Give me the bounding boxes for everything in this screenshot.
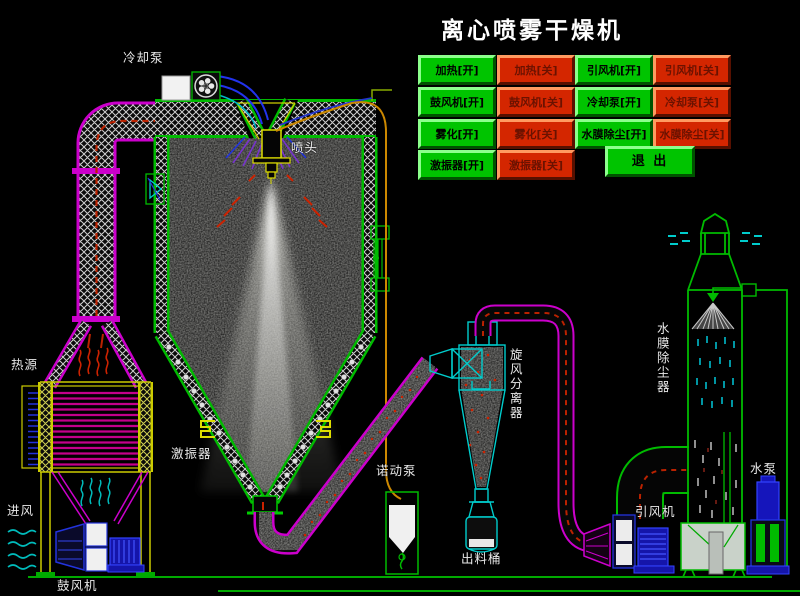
heat-source-label: 热源 <box>11 358 38 372</box>
spray-head-label: 喷头 <box>291 141 318 155</box>
induced-draft-fan-label: 引风机 <box>635 505 676 519</box>
blower-inlet-cone <box>56 524 84 570</box>
cooling-pump-label: 冷却泵 <box>123 51 164 65</box>
chamber-outlet <box>253 496 277 512</box>
heater-off-button[interactable]: 加热[关] <box>497 55 575 85</box>
cooling-pump-on-button[interactable]: 冷却泵[开] <box>575 87 653 117</box>
blower-on-button[interactable]: 鼓风机[开] <box>418 87 496 117</box>
air-inlet-arrows <box>8 530 36 569</box>
blower-off-button[interactable]: 鼓风机[关] <box>497 87 575 117</box>
cooling-fan-icon <box>195 75 217 97</box>
vibrator-label: 激振器 <box>171 447 212 461</box>
heating-elements <box>52 393 139 465</box>
water-film-tower <box>668 214 762 577</box>
spray-feed-fitting <box>742 284 756 296</box>
water-pump-label: 水泵 <box>750 462 777 476</box>
draft-fan-off-button[interactable]: 引风机[关] <box>653 55 731 85</box>
induced-draft-fan <box>584 515 674 573</box>
water-film-dust-collector-label: 水膜除尘器 <box>655 322 669 395</box>
heat-waves <box>79 348 108 376</box>
exit-button[interactable]: 退 出 <box>605 146 695 177</box>
exhaust-steam-dashes <box>668 233 762 244</box>
spray-dryer-hmi: 离心喷雾干燥机 加热[开] 加热[关] 引风机[开] 引风机[关] 鼓风机[开]… <box>0 0 800 596</box>
draft-fan-on-button[interactable]: 引风机[开] <box>575 55 653 85</box>
water-pump <box>747 290 789 574</box>
discharge-barrel-label: 出料桶 <box>461 552 502 566</box>
heater-on-button[interactable]: 加热[开] <box>418 55 496 85</box>
peristaltic-pump <box>386 492 418 574</box>
floor <box>28 577 800 591</box>
peristaltic-pump-label: 诺动泵 <box>376 464 417 478</box>
vibrator-on-button[interactable]: 激振器[开] <box>418 150 496 180</box>
cyclone-separator <box>430 322 505 552</box>
atomizer-on-button[interactable]: 雾化[开] <box>418 119 496 149</box>
tower-nozzle <box>707 293 719 302</box>
cooler-box <box>162 76 190 100</box>
barrel-band <box>469 539 494 547</box>
vibrator-off-button[interactable]: 激振器[关] <box>497 150 575 180</box>
water-film-on-button[interactable]: 水膜除尘[开] <box>575 119 653 149</box>
atomizer-off-button[interactable]: 雾化[关] <box>497 119 575 149</box>
blower-label: 鼓风机 <box>57 579 98 593</box>
cyclone-separator-label: 旋风分离器 <box>508 348 522 421</box>
air-inlet-label: 进风 <box>7 504 34 518</box>
blower <box>52 472 148 572</box>
rain-droplets-upper <box>697 336 734 408</box>
water-film-off-button[interactable]: 水膜除尘[关] <box>653 119 731 149</box>
page-title: 离心喷雾干燥机 <box>441 11 623 45</box>
cooling-pump-off-button[interactable]: 冷却泵[关] <box>653 87 731 117</box>
